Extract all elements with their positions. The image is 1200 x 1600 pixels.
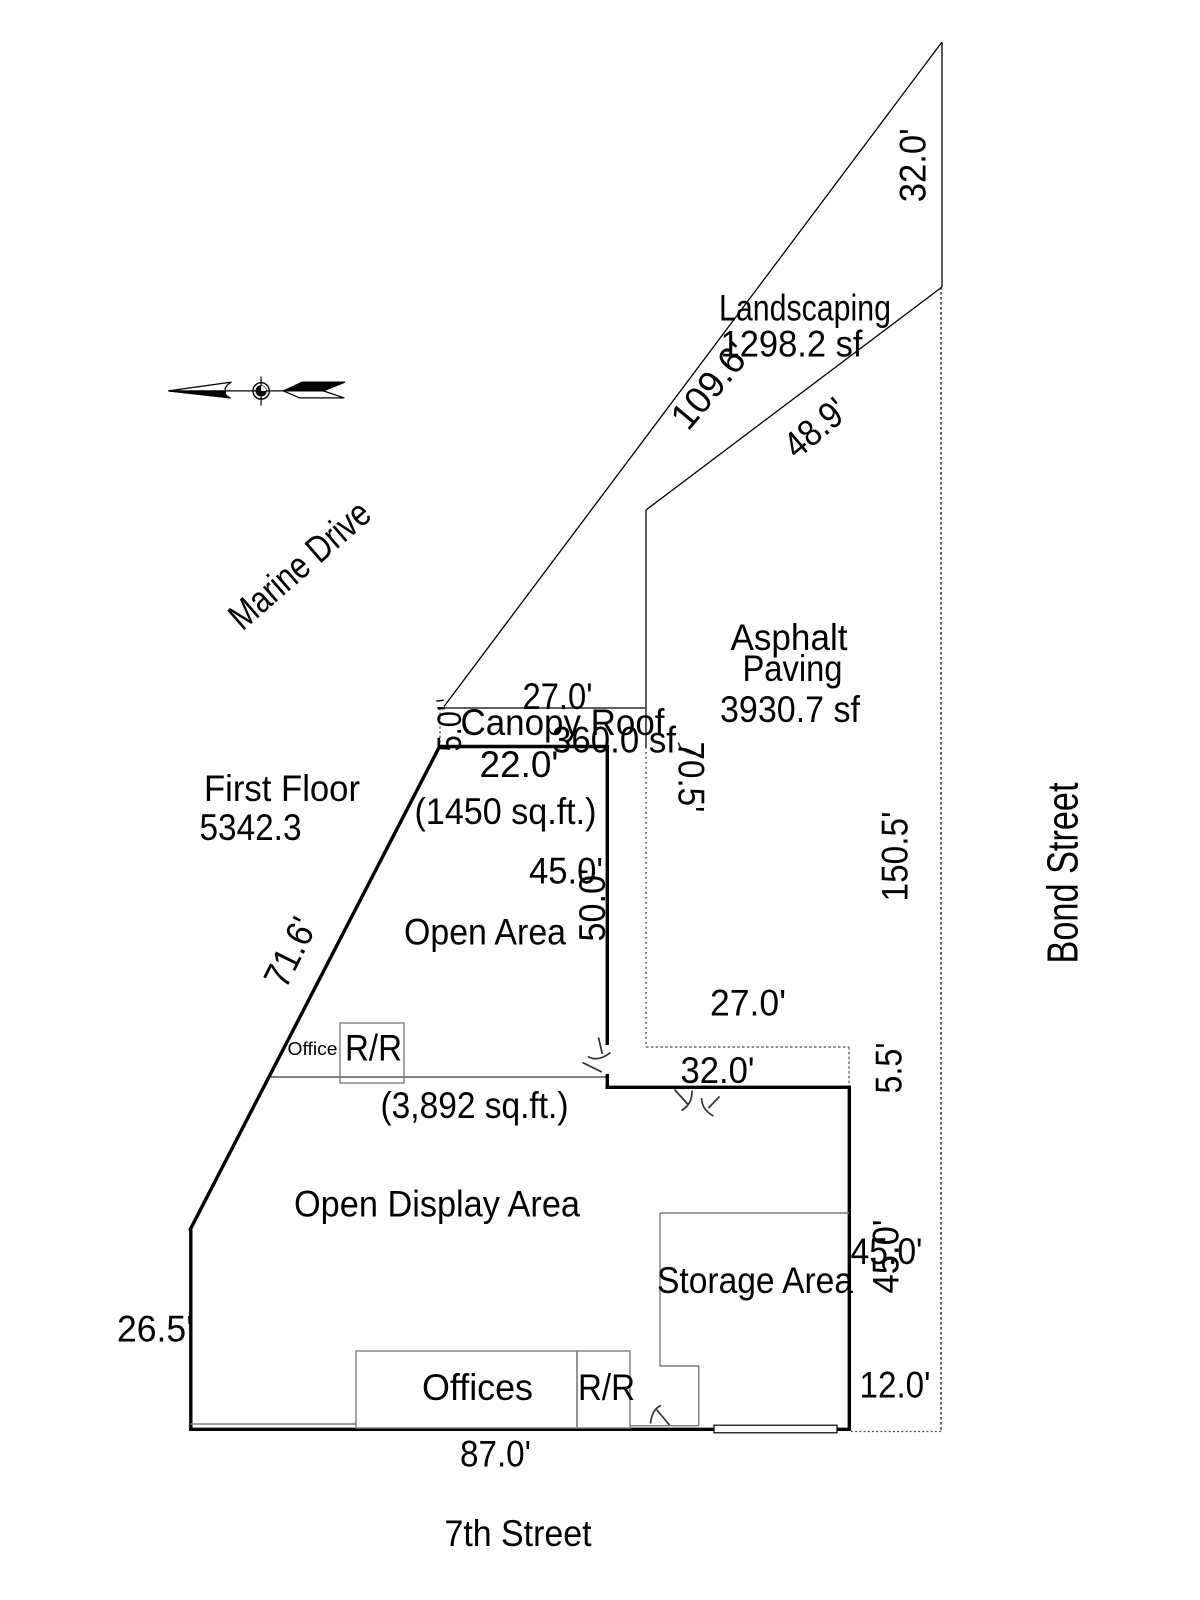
svg-text:27.0': 27.0' [710, 981, 786, 1023]
svg-text:150.5': 150.5' [874, 812, 916, 902]
svg-text:Paving: Paving [743, 647, 843, 689]
svg-text:(3,892 sq.ft.): (3,892 sq.ft.) [381, 1084, 569, 1126]
svg-text:32.0': 32.0' [681, 1049, 755, 1091]
svg-text:3930.7 sf: 3930.7 sf [720, 688, 861, 730]
svg-text:Open Display Area: Open Display Area [294, 1182, 580, 1224]
svg-text:R/R: R/R [345, 1027, 402, 1069]
svg-text:70.5': 70.5' [671, 742, 713, 813]
svg-text:109.6': 109.6' [662, 334, 758, 438]
svg-text:7th Street: 7th Street [445, 1512, 593, 1554]
svg-text:Offices: Offices [422, 1366, 533, 1408]
svg-text:5342.3: 5342.3 [200, 806, 302, 848]
svg-text:71.6': 71.6' [255, 910, 325, 993]
svg-text:Open Area: Open Area [404, 911, 566, 953]
svg-text:32.0': 32.0' [892, 128, 934, 202]
svg-text:Marine Drive: Marine Drive [220, 492, 379, 638]
svg-text:45.0': 45.0' [865, 1220, 907, 1294]
svg-text:22.0': 22.0' [480, 743, 559, 785]
svg-text:(1450 sq.ft.): (1450 sq.ft.) [415, 790, 597, 832]
svg-text:26.5': 26.5' [117, 1308, 193, 1350]
svg-text:First Floor: First Floor [204, 767, 360, 809]
svg-text:Storage Area: Storage Area [657, 1259, 853, 1301]
svg-text:Office: Office [288, 1039, 338, 1059]
svg-text:Bond Street: Bond Street [1039, 783, 1088, 964]
svg-text:5.5': 5.5' [868, 1043, 910, 1094]
svg-text:87.0': 87.0' [460, 1433, 531, 1475]
svg-text:R/R: R/R [578, 1366, 635, 1408]
svg-text:360.0 sf: 360.0 sf [552, 719, 677, 761]
svg-text:50.0': 50.0' [571, 869, 613, 942]
svg-text:5.0': 5.0' [431, 706, 469, 752]
svg-text:48.9': 48.9' [775, 389, 856, 466]
svg-text:12.0': 12.0' [860, 1364, 931, 1406]
